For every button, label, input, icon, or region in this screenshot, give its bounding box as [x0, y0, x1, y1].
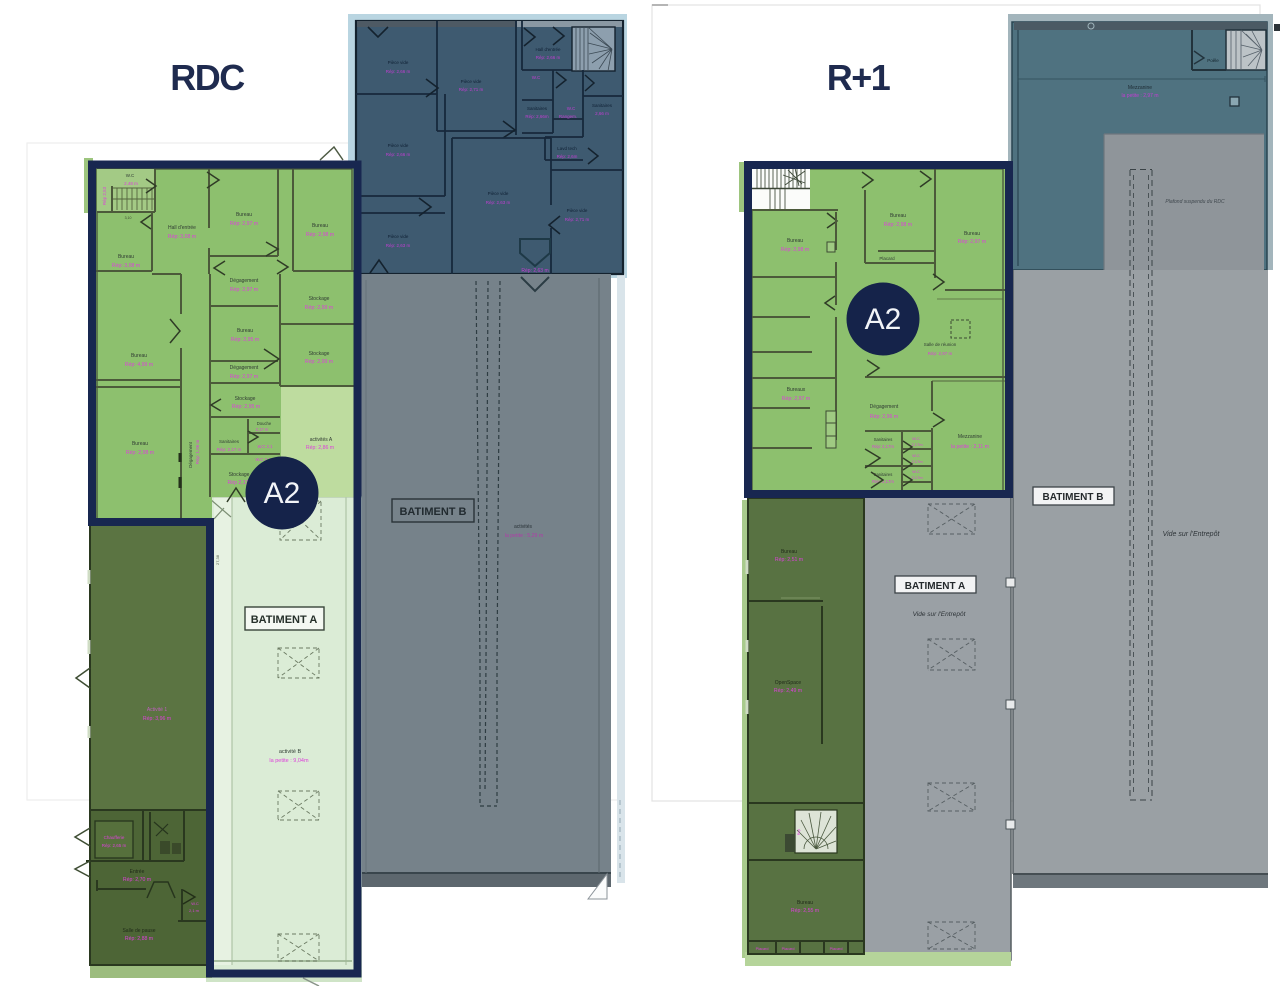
svg-text:Rép: 2,86 m: Rép: 2,86 m [306, 445, 334, 451]
svg-text:2,66 m: 2,66 m [595, 111, 609, 116]
svg-text:Rép: 2,96 m: Rép: 2,96 m [870, 414, 898, 420]
svg-text:Stockage: Stockage [235, 396, 256, 402]
svg-text:Rép: 2,6m: Rép: 2,6m [557, 154, 578, 159]
svg-text:RDC: RDC [170, 57, 245, 98]
svg-text:Dégagement: Dégagement [230, 278, 259, 284]
svg-text:Rép: 2,65 m: Rép: 2,65 m [102, 843, 127, 848]
svg-text:Rép: 2,98 m: Rép: 2,98 m [781, 247, 809, 253]
svg-text:Douche: Douche [257, 421, 272, 426]
svg-text:W.C 2,1: W.C 2,1 [258, 444, 274, 449]
svg-text:Bureau: Bureau [781, 549, 797, 555]
svg-text:Dégagement: Dégagement [230, 365, 259, 371]
svg-text:A2: A2 [865, 303, 902, 336]
svg-text:Vide sur l'Entrepôt: Vide sur l'Entrepôt [1163, 531, 1221, 538]
svg-text:Sanitaires: Sanitaires [592, 103, 613, 108]
svg-text:Rép: 2,71 m: Rép: 2,71 m [459, 87, 484, 92]
svg-text:Rép 2,53: Rép 2,53 [102, 186, 107, 205]
svg-text:Pièce vide: Pièce vide [488, 191, 509, 196]
svg-text:Rép: 2,88 m: Rép: 2,88 m [125, 936, 153, 942]
svg-text:W.C: W.C [126, 173, 135, 178]
svg-text:Bureau: Bureau [237, 328, 253, 334]
svg-text:Rép: 2,63 m: Rép: 2,63 m [386, 243, 411, 248]
svg-text:2,17m: 2,17m [911, 459, 923, 464]
svg-text:Pièce vide: Pièce vide [388, 234, 409, 239]
svg-text:3,10: 3,10 [125, 216, 132, 220]
svg-text:Rép: 2,66m: Rép: 2,66m [525, 114, 549, 119]
svg-text:Rép: Rép [797, 829, 801, 835]
svg-text:BATIMENT B: BATIMENT B [399, 506, 466, 518]
svg-text:Sanitaires: Sanitaires [527, 106, 548, 111]
svg-text:Rép: 2,97 m: Rép: 2,97 m [230, 221, 258, 227]
svg-text:Pièce vide: Pièce vide [388, 143, 409, 148]
svg-text:Rép: 3,96 m: Rép: 3,96 m [143, 716, 171, 722]
svg-text:W.C: W.C [912, 436, 920, 441]
svg-text:OpenSpace: OpenSpace [775, 680, 802, 686]
svg-text:Poêle: Poêle [1207, 58, 1219, 63]
svg-text:Rép: 2,97 m: Rép: 2,97 m [230, 374, 258, 380]
svg-text:R+1: R+1 [827, 57, 891, 98]
svg-text:BATIMENT A: BATIMENT A [251, 614, 318, 626]
svg-text:Rép: 2,99 m: Rép: 2,99 m [305, 305, 333, 311]
svg-text:Rép: 2,97 m: Rép: 2,97 m [928, 351, 953, 356]
svg-text:Pièce vide: Pièce vide [388, 60, 409, 65]
svg-text:Rép: 2,70 m: Rép: 2,70 m [123, 877, 151, 883]
svg-text:Rép: 2,17 m: Rép: 2,17 m [217, 447, 242, 452]
svg-text:Placard: Placard [830, 947, 843, 951]
svg-text:Rép: 2,51 m: Rép: 2,51 m [775, 557, 803, 563]
svg-text:Lavd tech: Lavd tech [557, 146, 577, 151]
svg-text:Rép: 4,99 m: Rép: 4,99 m [125, 362, 153, 368]
svg-text:Salle de pause: Salle de pause [122, 928, 155, 934]
svg-text:W.C: W.C [567, 106, 576, 111]
svg-text:2,17 m: 2,17 m [256, 427, 269, 432]
svg-text:la petite : 5,29 m: la petite : 5,29 m [505, 533, 543, 539]
svg-text:Rép: 2,63 m: Rép: 2,63 m [486, 200, 511, 205]
svg-text:Rangem.: Rangem. [559, 114, 577, 119]
svg-text:Bureau: Bureau [797, 900, 813, 906]
svg-text:Rép: 2,66 m: Rép: 2,66 m [386, 152, 411, 157]
svg-text:Bureau: Bureau [964, 231, 980, 237]
svg-text:Rép: 2,17m: Rép: 2,17m [872, 444, 894, 449]
svg-text:2,1 m: 2,1 m [189, 908, 200, 913]
svg-text:Stockage: Stockage [309, 296, 330, 302]
svg-text:2,48 m: 2,48 m [124, 181, 138, 186]
svg-text:activité B: activité B [279, 749, 302, 755]
svg-text:Dégagement: Dégagement [870, 404, 899, 410]
svg-text:Stockage: Stockage [309, 351, 330, 357]
svg-text:Bureau: Bureau [131, 353, 147, 359]
svg-text:W.C: W.C [532, 75, 541, 80]
svg-text:Bureau: Bureau [118, 254, 134, 260]
svg-text:Bureau: Bureau [236, 212, 252, 218]
svg-text:Sanitaires: Sanitaires [874, 437, 893, 442]
svg-text:Placard: Placard [879, 256, 895, 261]
svg-text:Plafond suspendu du RDC: Plafond suspendu du RDC [1165, 199, 1225, 205]
svg-text:A2: A2 [264, 477, 301, 510]
svg-text:Rép 2,17: Rép 2,17 [227, 480, 248, 486]
svg-text:Rép: 2,97 m: Rép: 2,97 m [782, 396, 810, 402]
svg-text:Rép: 2,71 m: Rép: 2,71 m [565, 217, 590, 222]
svg-text:Placard: Placard [782, 947, 795, 951]
svg-text:Rép: 2,98 m: Rép: 2,98 m [126, 450, 154, 456]
svg-text:Vide sur l'Entrepôt: Vide sur l'Entrepôt [913, 611, 967, 618]
svg-text:Sanitaires: Sanitaires [219, 439, 240, 444]
svg-text:Activité 1: Activité 1 [147, 707, 168, 713]
svg-text:W.C: W.C [191, 901, 199, 906]
svg-text:activités: activités [514, 524, 533, 530]
svg-text:2,17m: 2,17m [911, 442, 923, 447]
svg-text:Mezzanine: Mezzanine [958, 434, 982, 440]
svg-text:Rép: 1,96 m: Rép: 1,96 m [195, 439, 200, 464]
svg-text:BATIMENT B: BATIMENT B [1043, 492, 1104, 503]
svg-text:Rép: 2,49 m: Rép: 2,49 m [774, 688, 802, 694]
svg-text:Rép: 2,98 m: Rép: 2,98 m [306, 232, 334, 238]
svg-text:Pièce vide: Pièce vide [461, 79, 482, 84]
svg-text:2,17m: 2,17m [911, 475, 923, 480]
svg-text:Dégagement: Dégagement [188, 441, 193, 468]
svg-text:Rép: 2,97 m: Rép: 2,97 m [230, 287, 258, 293]
svg-text:Rép: 2,95 m: Rép: 2,95 m [231, 337, 259, 343]
svg-text:Hall d'entrée: Hall d'entrée [535, 47, 561, 52]
svg-text:Salle de réunion: Salle de réunion [924, 342, 957, 347]
svg-text:la petite : 9,04m: la petite : 9,04m [269, 758, 309, 764]
svg-text:Rép: 2,63 m: Rép: 2,63 m [521, 268, 548, 274]
svg-text:Pièce vide: Pièce vide [567, 208, 588, 213]
svg-text:Rép: 3,08 m: Rép: 3,08 m [112, 263, 140, 269]
svg-text:Rép: 3,08 m: Rép: 3,08 m [168, 234, 196, 240]
svg-text:Bureau: Bureau [132, 441, 148, 447]
svg-text:Bureau: Bureau [312, 223, 328, 229]
svg-text:la petite : 2,97 m: la petite : 2,97 m [1122, 93, 1159, 99]
svg-text:Rép: 2,95 m: Rép: 2,95 m [232, 404, 260, 410]
svg-text:Stockage: Stockage [229, 472, 250, 478]
svg-text:Mezzanine: Mezzanine [1128, 85, 1152, 91]
svg-text:la petite : 2,11 m: la petite : 2,11 m [951, 444, 989, 450]
svg-text:Hall d'entrée: Hall d'entrée [168, 225, 196, 231]
svg-text:Rép: 2,98 m: Rép: 2,98 m [884, 222, 912, 228]
svg-text:Bureau: Bureau [787, 238, 803, 244]
svg-text:Rép: 2,99 m: Rép: 2,99 m [305, 359, 333, 365]
svg-text:27,38: 27,38 [215, 554, 220, 565]
svg-text:Bureau: Bureau [890, 213, 906, 219]
svg-text:Bureaux: Bureaux [787, 387, 806, 393]
svg-text:Rép: 2,97 m: Rép: 2,97 m [958, 239, 986, 245]
svg-text:Chaufferie: Chaufferie [104, 835, 125, 840]
svg-text:W.C: W.C [912, 469, 920, 474]
svg-text:W.C: W.C [912, 453, 920, 458]
svg-text:BATIMENT A: BATIMENT A [905, 581, 966, 592]
svg-text:Placard: Placard [756, 947, 769, 951]
svg-text:Rép: 2,66 m: Rép: 2,66 m [536, 55, 561, 60]
svg-text:Rép: 2,66 m: Rép: 2,66 m [386, 69, 411, 74]
svg-text:Entrée: Entrée [130, 869, 145, 875]
svg-text:Rép: 2,55 m: Rép: 2,55 m [791, 908, 819, 914]
svg-text:activités A: activités A [310, 437, 333, 443]
